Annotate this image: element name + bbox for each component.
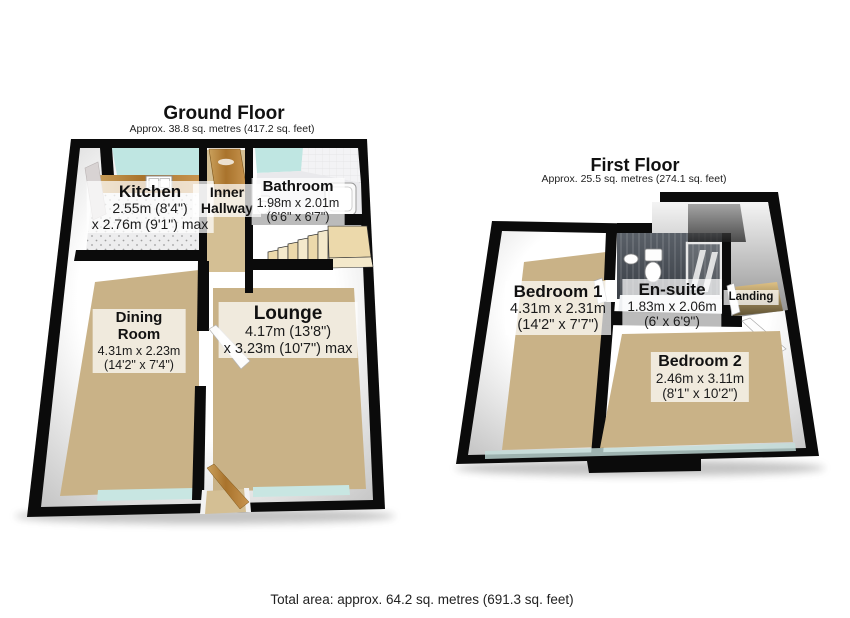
dining-room-dim2: (14'2" x 7'4") [98,358,181,372]
kitchen-window-glass [112,148,200,175]
bedroom-1-name: Bedroom 1 [510,282,606,301]
ensuite-name: En-suite [627,280,716,299]
kitchen-dim2: x 2.76m (9'1") max [92,217,209,233]
divider-wall-upper [197,261,209,331]
dining-room-name: Dining Room [114,310,164,344]
lounge-name: Lounge [224,303,353,324]
hallway-door-detail [218,159,234,165]
bedroom-1-label: Bedroom 1 4.31m x 2.31m (14'2" x 7'7") [505,281,611,335]
wall-hallway-lounge-stub [245,272,253,293]
bedroom-1-dim2: (14'2" x 7'7") [510,317,606,333]
floorplan-page: Ground Floor Approx. 38.8 sq. metres (41… [0,0,850,618]
ensuite-right-wall [722,232,731,322]
stair-landing-block [328,226,371,258]
stair-step-6 [318,230,328,263]
inner-hallway-name: Inner Hallway [198,185,256,216]
ground-floor-title: Ground Floor [163,103,284,125]
kitchen-dim1: 2.55m (8'4") [92,201,209,217]
bedroom-1-dim1: 4.31m x 2.31m [510,301,606,317]
bathroom-window-glass [255,148,303,173]
bathroom-name: Bathroom [257,179,340,196]
bedroom-2-dim2: (8'1" x 10'2") [656,386,744,401]
ensuite-sink [624,254,638,264]
dining-room-dim1: 4.31m x 2.23m [98,344,181,358]
total-area-text: Total area: approx. 64.2 sq. metres (691… [270,592,573,607]
kitchen-window-jamb [100,148,114,176]
wall-under-stairs [245,259,333,270]
stair-step-2 [278,246,288,261]
ensuite-label: En-suite 1.83m x 2.06m (6' x 6'9") [622,279,721,330]
stair-step-5 [308,234,318,262]
stair-step-4 [298,238,308,262]
first-floor-subtitle: Approx. 25.5 sq. metres (274.1 sq. feet) [541,173,726,185]
ensuite-dim2: (6' x 6'9") [627,314,716,329]
bathroom-label: Bathroom 1.98m x 2.01m (6'6" x 6'7") [252,178,345,225]
lounge-label: Lounge 4.17m (13'8") x 3.23m (10'7") max [219,302,358,358]
b1-divider-upper [604,232,617,280]
dining-window-strip [97,488,195,501]
ensuite-toilet-cistern [645,249,662,261]
lounge-dim1: 4.17m (13'8") [224,324,353,340]
landing-name: Landing [729,291,774,304]
stair-landing-step [329,257,373,268]
landing-label: Landing [724,290,779,305]
ensuite-dim1: 1.83m x 2.06m [627,299,716,314]
bedroom-2-dim1: 2.46m x 3.11m [656,371,744,386]
bedroom-2-name: Bedroom 2 [656,353,744,371]
kitchen-name: Kitchen [92,182,209,201]
lounge-dim2: x 3.23m (10'7") max [224,341,353,357]
dining-room-label: Dining Room 4.31m x 2.23m (14'2" x 7'4") [93,309,186,373]
stairwell-opening [688,204,746,242]
lounge-window-strip [253,485,350,497]
ground-floor-subtitle: Approx. 38.8 sq. metres (417.2 sq. feet) [129,123,314,135]
wall-kitchen-bottom [74,250,207,261]
bathroom-dim2: (6'6" x 6'7") [257,210,340,224]
bathroom-dim1: 1.98m x 2.01m [257,196,340,210]
bedroom-2-label: Bedroom 2 2.46m x 3.11m (8'1" x 10'2") [651,352,749,402]
